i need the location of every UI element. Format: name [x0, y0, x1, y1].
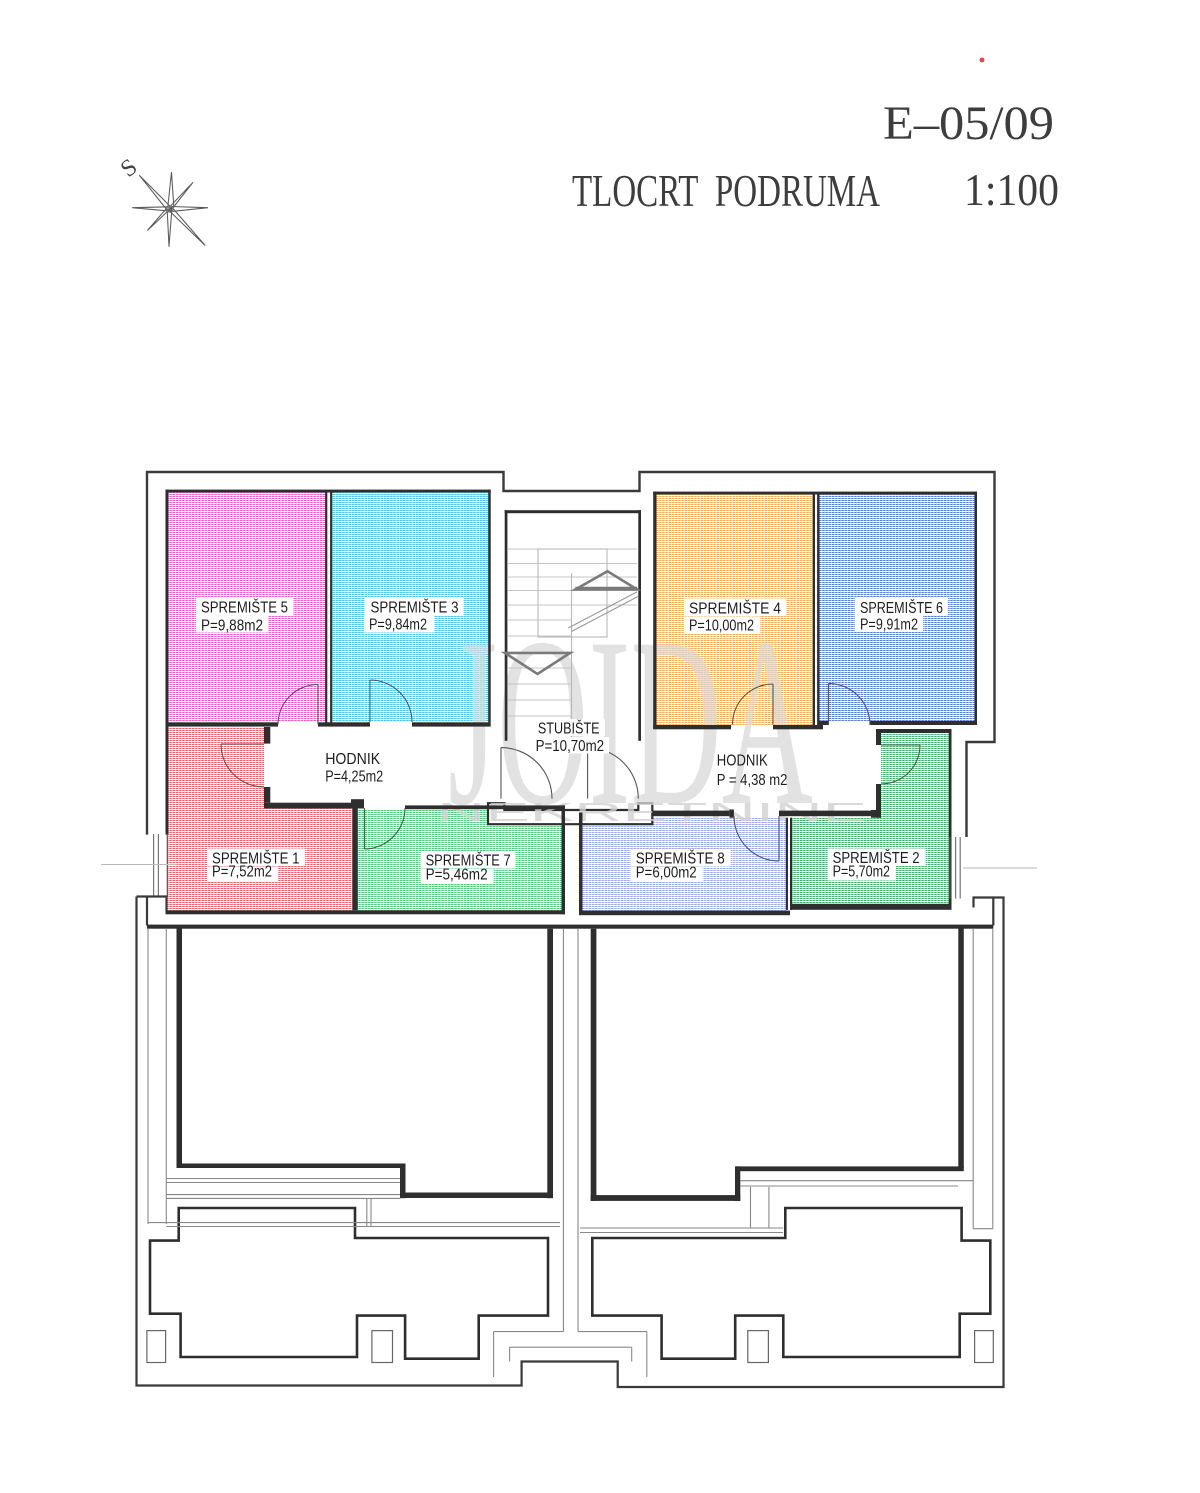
- svg-text:P=5,46m2: P=5,46m2: [426, 867, 488, 884]
- svg-text:P = 4,38 m2: P = 4,38 m2: [717, 772, 788, 789]
- svg-text:P=7,52m2: P=7,52m2: [212, 864, 272, 881]
- svg-text:STUBIŠTE: STUBIŠTE: [538, 720, 600, 737]
- svg-text:SPREMIŠTE 5: SPREMIŠTE 5: [201, 598, 288, 617]
- svg-text:E–05/09: E–05/09: [883, 97, 1054, 150]
- svg-text:HODNIK: HODNIK: [717, 753, 769, 770]
- svg-text:P=4,25m2: P=4,25m2: [325, 768, 383, 785]
- svg-text:P=9,91m2: P=9,91m2: [860, 617, 918, 634]
- svg-text:TLOCRT PODRUMA: TLOCRT PODRUMA: [572, 165, 880, 216]
- svg-text:SPREMIŠTE 3: SPREMIŠTE 3: [371, 598, 459, 617]
- svg-text:P=9,88m2: P=9,88m2: [201, 618, 263, 635]
- svg-text:SPREMIŠTE 4: SPREMIŠTE 4: [689, 598, 781, 617]
- svg-text:P=10,70m2: P=10,70m2: [536, 738, 605, 755]
- svg-text:P=9,84m2: P=9,84m2: [369, 617, 427, 634]
- svg-text:P=6,00m2: P=6,00m2: [636, 865, 697, 882]
- svg-text:1:100: 1:100: [964, 164, 1059, 215]
- svg-text:P=5,70m2: P=5,70m2: [833, 863, 890, 880]
- svg-text:HODNIK: HODNIK: [325, 751, 381, 768]
- svg-text:P=10,00m2: P=10,00m2: [689, 618, 754, 635]
- svg-text:SPREMIŠTE 6: SPREMIŠTE 6: [860, 598, 943, 617]
